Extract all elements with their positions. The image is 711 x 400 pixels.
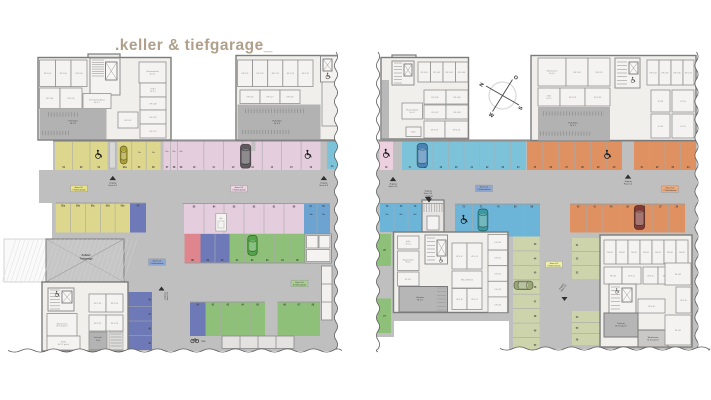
svg-text:KF 4.40: KF 4.40 bbox=[610, 275, 616, 277]
svg-text:05d: 05d bbox=[106, 206, 111, 208]
svg-text:KF 4.11: KF 4.11 bbox=[405, 279, 411, 281]
svg-text:KF 5.08: KF 5.08 bbox=[149, 103, 157, 105]
svg-text:KF 4.44: KF 4.44 bbox=[648, 306, 654, 308]
svg-text:KF 5.16: KF 5.16 bbox=[246, 97, 254, 99]
svg-text:KF 4.17: KF 4.17 bbox=[471, 299, 477, 301]
svg-text:KF 4.22: KF 4.22 bbox=[495, 273, 501, 275]
svg-text:Nr 5.1: Nr 5.1 bbox=[549, 73, 555, 75]
svg-text:Nr 5.1: Nr 5.1 bbox=[150, 73, 156, 75]
svg-text:KF 5.05: KF 5.05 bbox=[67, 98, 75, 100]
svg-text:Nr 5.1: Nr 5.1 bbox=[570, 124, 577, 127]
svg-text:KF 4.02: KF 4.02 bbox=[433, 72, 441, 74]
svg-text:KF 5.04: KF 5.04 bbox=[46, 98, 54, 100]
svg-text:KF 4.24: KF 4.24 bbox=[495, 305, 501, 307]
svg-text:05b: 05b bbox=[76, 206, 81, 208]
svg-text:KF 4.09: KF 4.09 bbox=[431, 129, 439, 131]
svg-text:KF 4.12: KF 4.12 bbox=[456, 256, 462, 258]
svg-text:Nr 5.4: Nr 5.4 bbox=[406, 243, 411, 245]
svg-text:KF 4.46: KF 4.46 bbox=[680, 300, 686, 302]
svg-text:Nr 5.1: Nr 5.1 bbox=[150, 91, 156, 93]
svg-text:KF 4.45: KF 4.45 bbox=[675, 274, 681, 276]
svg-text:KF 4.07: KF 4.07 bbox=[431, 112, 439, 114]
svg-text:7 Kellerabteile: 7 Kellerabteile bbox=[72, 188, 86, 191]
svg-text:KF 5.01: KF 5.01 bbox=[44, 73, 52, 75]
svg-text:KF 5.11: KF 5.11 bbox=[242, 73, 250, 75]
svg-text:Haus 5-1: Haus 5-1 bbox=[109, 185, 118, 187]
svg-text:Nr 5.1: Nr 5.1 bbox=[547, 98, 552, 100]
svg-text:KF 4.42: KF 4.42 bbox=[647, 275, 653, 277]
svg-text:K 5.40: K 5.40 bbox=[658, 126, 663, 128]
svg-text:KF4.33: KF4.33 bbox=[643, 252, 649, 254]
svg-text:9 Kellerabteile: 9 Kellerabteile bbox=[477, 188, 491, 191]
svg-text:Haus 5-2: Haus 5-2 bbox=[167, 291, 169, 300]
svg-text:Haus 5-2: Haus 5-2 bbox=[389, 186, 398, 188]
svg-text:Nr 5.3: Nr 5.3 bbox=[274, 122, 281, 125]
svg-text:KF 4.03: KF 4.03 bbox=[446, 72, 454, 74]
svg-text:K 5.38: K 5.38 bbox=[658, 101, 663, 103]
svg-text:KF4.30: KF4.30 bbox=[607, 252, 613, 254]
svg-text:KF 5.37: KF 5.37 bbox=[685, 72, 693, 74]
svg-text:Nr 5.1: Nr 5.1 bbox=[94, 102, 100, 104]
svg-text:KF 5.10: KF 5.10 bbox=[149, 131, 157, 133]
svg-text:KF 5.34: KF 5.34 bbox=[649, 72, 657, 74]
svg-text:KF4.35: KF4.35 bbox=[667, 252, 673, 254]
svg-text:KF 4.04: KF 4.04 bbox=[458, 72, 466, 74]
svg-text:KF 5.33: KF 5.33 bbox=[594, 97, 602, 99]
svg-text:KF 4.13: KF 4.13 bbox=[471, 256, 477, 258]
svg-text:KF 4.01: KF 4.01 bbox=[421, 72, 429, 74]
svg-text:9 Kellerabteile: 9 Kellerabteile bbox=[150, 262, 164, 265]
svg-text:Nr 5.1: Nr 5.1 bbox=[70, 122, 77, 125]
svg-text:KF 4.23: KF 4.23 bbox=[495, 289, 501, 291]
svg-text:Nr 5.6 plus 8: Nr 5.6 plus 8 bbox=[647, 340, 659, 342]
svg-text:KF 5.21: KF 5.21 bbox=[111, 303, 119, 305]
svg-text:2+1: 2+1 bbox=[202, 340, 207, 343]
svg-text:KF 5.20: KF 5.20 bbox=[94, 303, 102, 305]
svg-text:KF 4.06: KF 4.06 bbox=[453, 97, 461, 99]
svg-text:Haus 5-1: Haus 5-1 bbox=[624, 184, 633, 186]
svg-text:Fahrräder: Fahrräder bbox=[94, 336, 103, 339]
svg-text:KF 4.47: KF 4.47 bbox=[675, 330, 681, 332]
svg-text:KF4.36: KF4.36 bbox=[679, 252, 685, 254]
svg-text:Vorraum: Vorraum bbox=[416, 296, 424, 299]
svg-text:Keller: Keller bbox=[411, 132, 416, 134]
svg-text:KF 5.12: KF 5.12 bbox=[257, 73, 265, 75]
svg-text:9 Kellerabteile: 9 Kellerabteile bbox=[232, 189, 246, 192]
svg-text:KF 5.13: KF 5.13 bbox=[272, 73, 280, 75]
svg-text:KF 4.21: KF 4.21 bbox=[495, 258, 501, 260]
svg-text:KF 5.31: KF 5.31 bbox=[595, 72, 603, 74]
svg-text:KF 5.07: KF 5.07 bbox=[124, 120, 132, 122]
svg-text:.keller & tiefgarage_: .keller & tiefgarage_ bbox=[115, 37, 273, 54]
svg-text:KF 5.17: KF 5.17 bbox=[266, 97, 274, 99]
svg-text:KF 5.30: KF 5.30 bbox=[573, 72, 581, 74]
svg-text:KF4.31: KF4.31 bbox=[619, 252, 625, 254]
svg-text:Nr 5.2 plus 4: Nr 5.2 plus 4 bbox=[58, 344, 70, 346]
svg-text:KF 5.22: KF 5.22 bbox=[94, 323, 102, 325]
svg-text:KF 5.14: KF 5.14 bbox=[287, 73, 295, 75]
svg-text:8 Stk: 8 Stk bbox=[96, 339, 100, 342]
svg-text:KF4.34: KF4.34 bbox=[655, 252, 661, 254]
svg-text:KF 4.41: KF 4.41 bbox=[628, 275, 634, 277]
svg-text:K 5.39: K 5.39 bbox=[680, 101, 685, 103]
svg-text:Nr 5.2 plus 4: Nr 5.2 plus 4 bbox=[56, 326, 68, 328]
svg-text:Haus 5-3: Haus 5-3 bbox=[320, 185, 329, 187]
svg-text:KF 5.18: KF 5.18 bbox=[286, 97, 294, 99]
svg-text:KF 5.02: KF 5.02 bbox=[60, 73, 68, 75]
svg-text:Tiefgarage: Tiefgarage bbox=[79, 257, 93, 261]
svg-text:KF 4.20: KF 4.20 bbox=[495, 242, 501, 244]
svg-text:KF 4.10: KF 4.10 bbox=[453, 129, 461, 131]
svg-text:KF 5.03: KF 5.03 bbox=[75, 73, 83, 75]
svg-text:K 5.41: K 5.41 bbox=[680, 126, 685, 128]
svg-text:KF 5.09: KF 5.09 bbox=[149, 117, 157, 119]
svg-text:Nr 5.4: Nr 5.4 bbox=[406, 262, 411, 264]
svg-text:Nr 5.6 plus 8: Nr 5.6 plus 8 bbox=[615, 326, 627, 328]
svg-text:6 Kellerabteile: 6 Kellerabteile bbox=[293, 283, 307, 286]
svg-text:Nr 5.2: Nr 5.2 bbox=[409, 112, 415, 114]
svg-text:7 Kellerabteile: 7 Kellerabteile bbox=[663, 189, 677, 192]
svg-text:KF 4.05: KF 4.05 bbox=[431, 97, 439, 99]
svg-text:Zufahrt: Zufahrt bbox=[82, 253, 91, 257]
svg-text:KF 5.23: KF 5.23 bbox=[111, 323, 119, 325]
svg-text:4 Kellerabteile: 4 Kellerabteile bbox=[547, 264, 561, 267]
svg-text:KF 4.16: KF 4.16 bbox=[456, 299, 462, 301]
svg-text:KF 5.32: KF 5.32 bbox=[569, 97, 577, 99]
svg-text:KF 5.15: KF 5.15 bbox=[302, 73, 310, 75]
svg-text:Zugang: Zugang bbox=[425, 195, 433, 197]
svg-text:KF4.32: KF4.32 bbox=[631, 252, 637, 254]
svg-text:KF 5.36: KF 5.36 bbox=[673, 72, 681, 74]
svg-text:KF 5.35: KF 5.35 bbox=[661, 72, 669, 74]
svg-text:Nr 5.4: Nr 5.4 bbox=[417, 299, 424, 302]
svg-text:KF4.14 KF4.15: KF4.14 KF4.15 bbox=[461, 279, 473, 281]
svg-text:KF 4.08: KF 4.08 bbox=[453, 112, 461, 114]
svg-text:04a: 04a bbox=[123, 166, 128, 169]
